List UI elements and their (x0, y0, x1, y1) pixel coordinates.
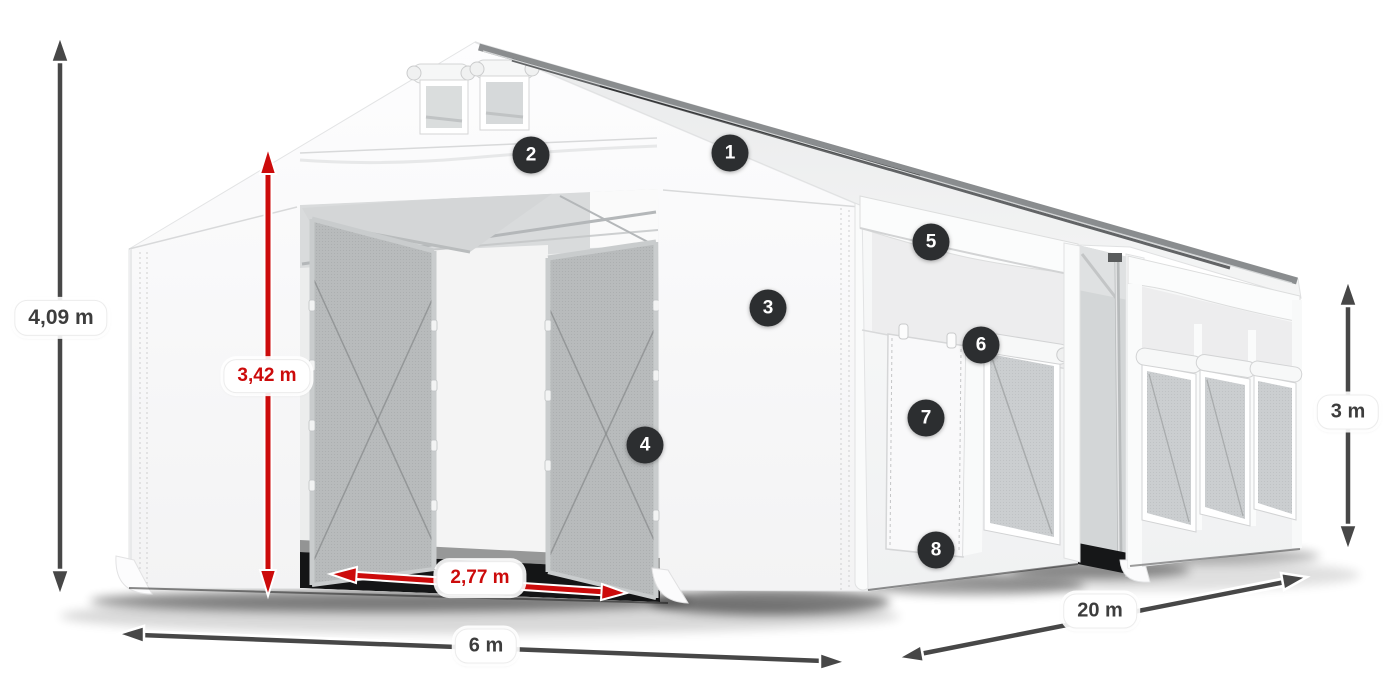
dimension-label-entrance-height: 3,42 m (223, 359, 310, 393)
rear-window (1135, 347, 1203, 532)
callout-badge-4[interactable]: 4 (627, 427, 664, 464)
callout-badge-2[interactable]: 2 (513, 137, 550, 174)
tent-dimensions-diagram: 4,09 m 3,42 m 2,77 m 6 m 20 m 3 m 1 2 3 … (0, 0, 1400, 700)
rear-window (1249, 360, 1303, 520)
dimension-label-side-height: 3 m (1317, 395, 1379, 430)
callout-badge-7[interactable]: 7 (908, 400, 945, 437)
callout-badge-8[interactable]: 8 (918, 532, 955, 569)
callout-badge-5[interactable]: 5 (913, 224, 950, 261)
entrance-left-door (309, 219, 437, 585)
side-door (886, 324, 966, 557)
pole-connector (1108, 253, 1122, 262)
callout-badge-1[interactable]: 1 (712, 135, 749, 172)
callout-badge-3[interactable]: 3 (750, 290, 787, 327)
rear-window (1195, 353, 1257, 526)
dimension-label-total-height: 4,09 m (14, 300, 107, 336)
side-wall-rear-section (1128, 256, 1303, 568)
dimension-label-front-width: 6 m (455, 629, 517, 664)
dimension-label-side-length: 20 m (1063, 594, 1137, 629)
door-hanger-hook (947, 333, 956, 348)
door-hanger-hook (899, 324, 908, 339)
dimension-label-entrance-width: 2,77 m (436, 561, 523, 595)
entrance-right-door (545, 242, 659, 598)
callout-badge-6[interactable]: 6 (963, 327, 1000, 364)
side-wall-front-section (860, 196, 1078, 591)
entrance-interior (295, 185, 665, 605)
tent-illustration (0, 0, 1400, 700)
